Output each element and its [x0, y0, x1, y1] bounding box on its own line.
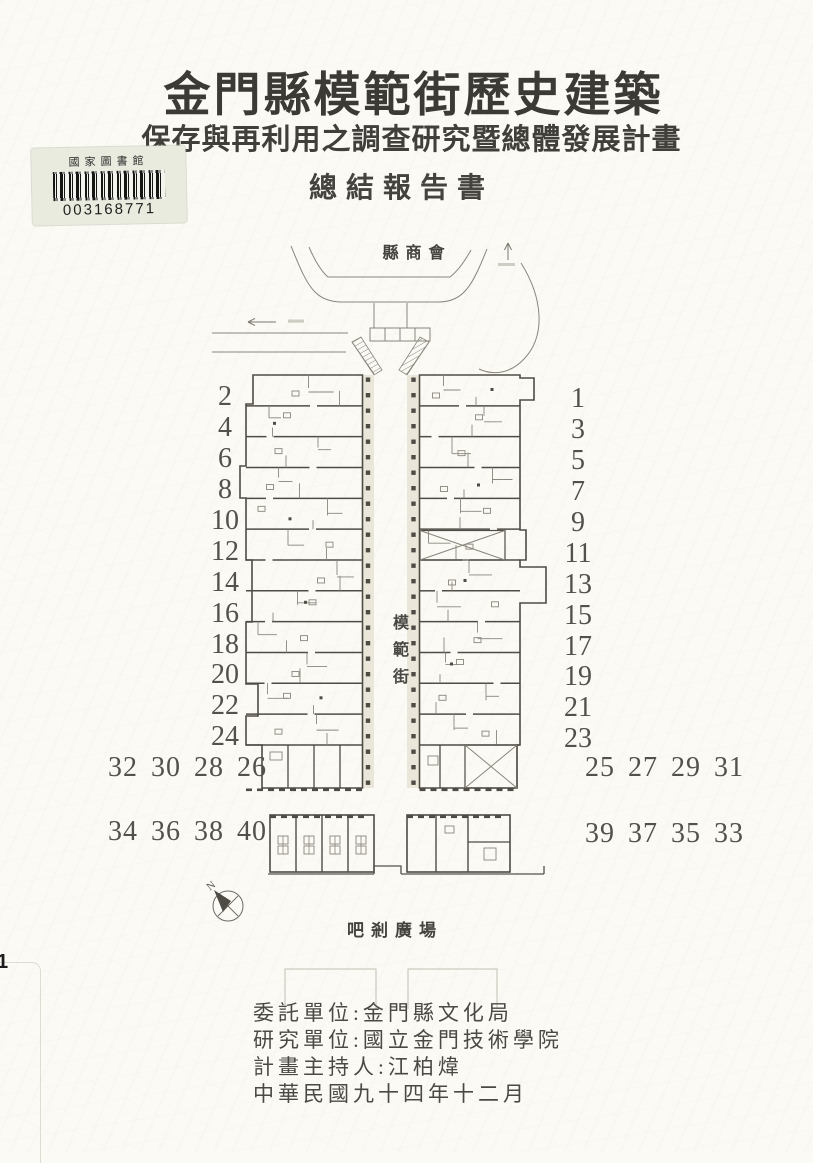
- shop-number: 3: [554, 415, 602, 446]
- tiny-annotation-mark: [288, 320, 304, 323]
- shop-number: 20: [202, 660, 248, 691]
- page-edge-mark: 1: [0, 951, 8, 974]
- library-barcode-sticker: 國家圖書館 003168771: [31, 145, 187, 225]
- plaza-name-label: 吧剎廣場: [330, 916, 460, 941]
- access-road-lines: [212, 246, 539, 374]
- shop-numbers-row: 32 30 28 26: [108, 752, 267, 784]
- shop-number: 10: [202, 506, 248, 537]
- shop-number: 19: [554, 662, 602, 693]
- shop-number: 14: [202, 567, 248, 598]
- shop-number: 1: [554, 384, 602, 415]
- shop-numbers-left-column: 24681012141618202224: [202, 382, 248, 753]
- scanned-report-cover: { "cover": { "title": "金門縣模範街歷史建築", "sub…: [0, 0, 813, 1152]
- tiny-annotation-mark: [498, 263, 515, 266]
- shop-number: 11: [554, 538, 602, 569]
- stairs-hatch-left: [352, 337, 382, 375]
- shop-number: 22: [202, 691, 248, 722]
- plan-generated-detail: [246, 375, 520, 872]
- shop-number: 5: [554, 446, 602, 477]
- credits-block: 委託單位:金門縣文化局研究單位:國立金門技術學院計畫主持人:江柏煒中華民國九十四…: [253, 1000, 563, 1108]
- library-name-label: 國家圖書館: [68, 152, 148, 170]
- shop-number: 13: [554, 569, 602, 600]
- page-corner-line: [0, 962, 41, 1163]
- credit-line: 研究單位:國立金門技術學院: [253, 1027, 563, 1054]
- shop-number: 6: [202, 444, 248, 475]
- shop-number: 12: [202, 536, 248, 567]
- report-title: 金門縣模範街歷史建築: [0, 56, 813, 125]
- left-arrow-icon: [248, 319, 276, 326]
- shop-number: 2: [202, 382, 248, 413]
- up-arrow-icon: [505, 243, 512, 260]
- barcode-number: 003168771: [63, 200, 156, 219]
- shop-number: 16: [202, 598, 248, 629]
- shop-number: 8: [202, 475, 248, 506]
- compass-north-label: N: [204, 879, 218, 893]
- shop-number: 15: [554, 600, 602, 631]
- shop-number: 18: [202, 629, 248, 660]
- county-chamber-label: 縣商會: [382, 243, 451, 262]
- credit-line: 計畫主持人:江柏煒: [253, 1054, 563, 1081]
- shop-number: 17: [554, 631, 602, 662]
- shop-number: 21: [554, 693, 602, 724]
- shop-numbers-row: 25 27 29 31: [585, 752, 744, 784]
- credit-line: 中華民國九十四年十二月: [253, 1081, 563, 1108]
- shop-number: 4: [202, 413, 248, 444]
- street-name-label: 模範街: [386, 614, 410, 695]
- shop-numbers-row: 34 36 38 40: [108, 816, 267, 848]
- credit-line: 委託單位:金門縣文化局: [253, 1000, 563, 1027]
- compass-icon: [213, 890, 243, 921]
- shop-numbers-row: 39 37 35 33: [585, 818, 744, 850]
- shop-number: 7: [554, 477, 602, 508]
- shop-numbers-right-column: 1357911131517192123: [554, 384, 602, 755]
- stairs-hatch-right: [399, 337, 429, 375]
- barcode-icon: [53, 170, 166, 201]
- shop-number: 24: [202, 722, 248, 753]
- shop-number: 23: [554, 724, 602, 755]
- shop-number: 9: [554, 508, 602, 539]
